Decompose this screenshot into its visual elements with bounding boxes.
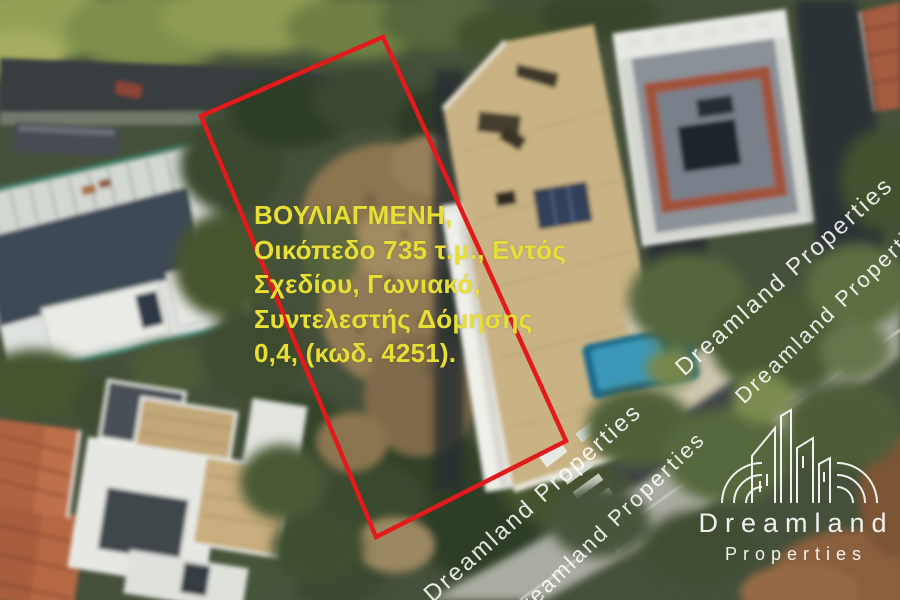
listing-line-code: 0,4, (κωδ. 4251).	[254, 336, 566, 371]
building-top-right	[614, 11, 814, 245]
agency-logo-tagline: Properties	[692, 544, 900, 565]
agency-logo: Dreamland Properties	[692, 386, 900, 582]
listing-line-zone: Σχεδίου, Γωνιακό,	[254, 267, 566, 302]
rooftop-panels	[677, 119, 741, 173]
agency-logo-name: Dreamland	[692, 508, 900, 539]
listing-description: ΒΟΥΛΙΑΓΜΕΝΗ, Οικόπεδο 735 τ.μ., Εντός Σχ…	[254, 198, 566, 371]
listing-photo: ΒΟΥΛΙΑΓΜΕΝΗ, Οικόπεδο 735 τ.μ., Εντός Σχ…	[0, 0, 900, 600]
agency-logo-icon	[692, 386, 900, 516]
listing-line-location: ΒΟΥΛΙΑΓΜΕΝΗ,	[254, 198, 566, 233]
listing-line-coefficient: Συντελεστής Δόμησης	[254, 302, 566, 337]
listing-line-area: Οικόπεδο 735 τ.μ., Εντός	[254, 233, 566, 268]
